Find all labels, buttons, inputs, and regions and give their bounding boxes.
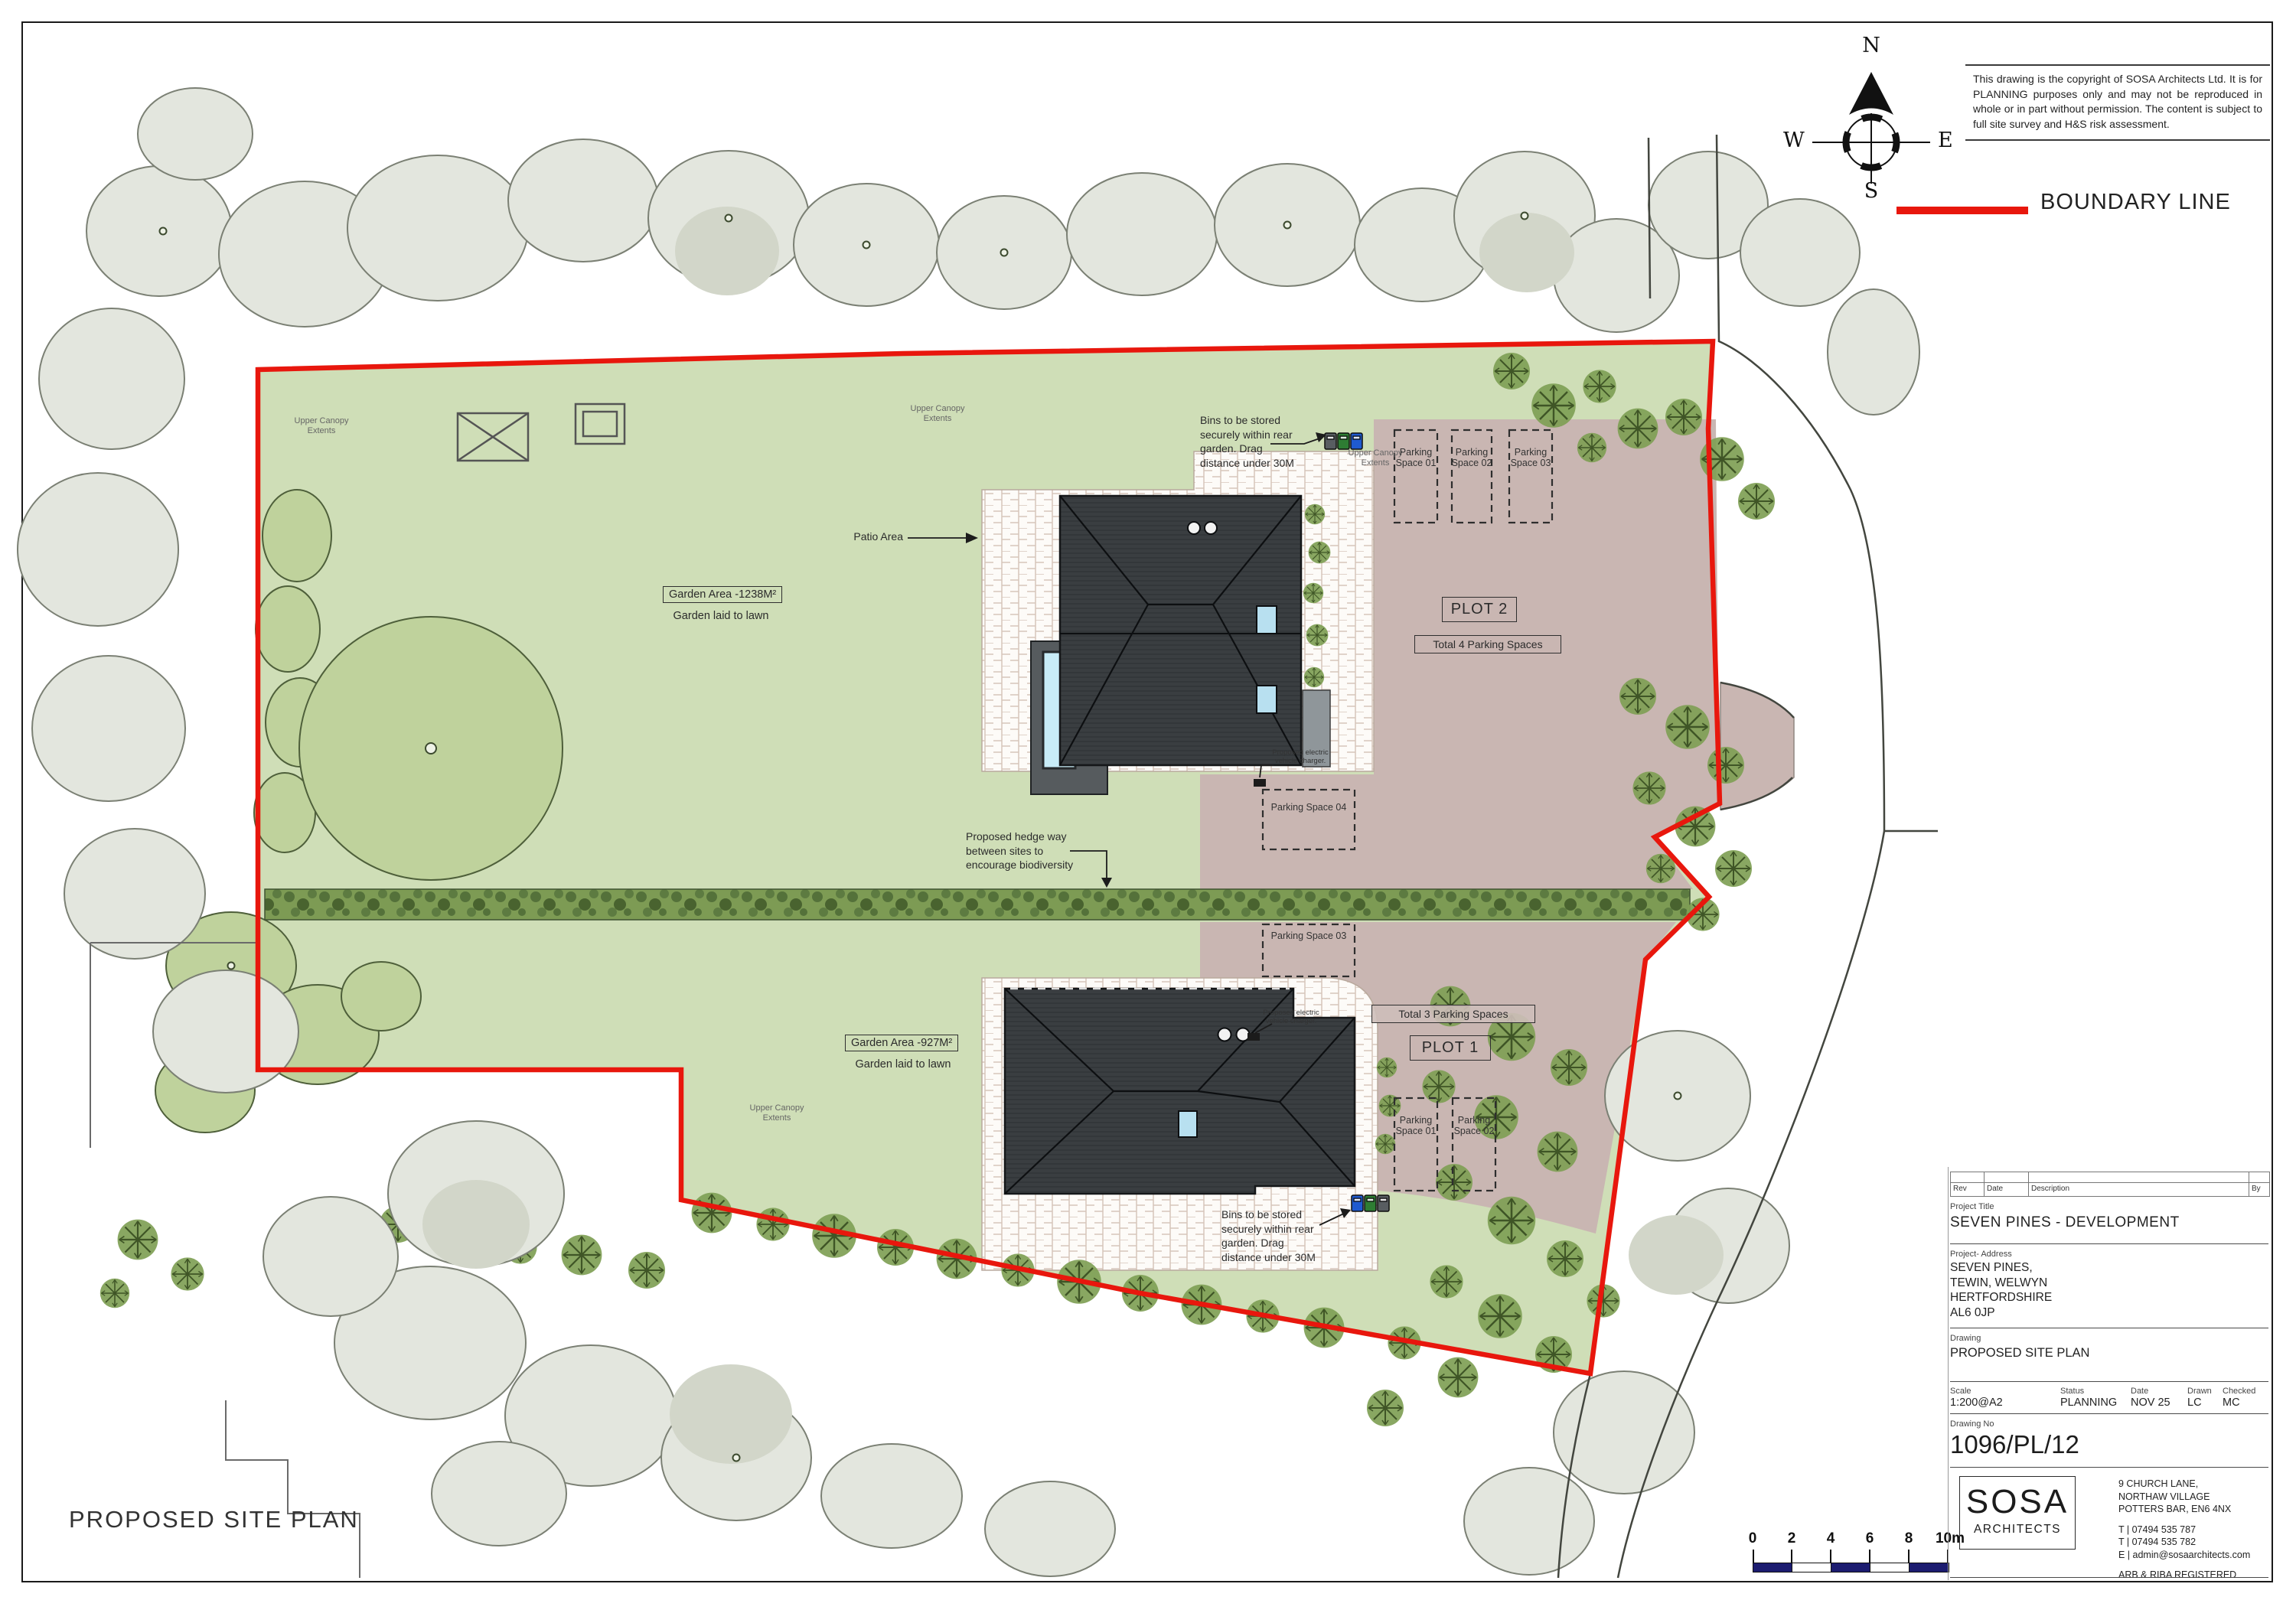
drawing-label: Drawing: [1950, 1334, 1981, 1343]
scale-value: 1:200@A2: [1950, 1396, 2003, 1409]
plot2-label: PLOT 2: [1442, 597, 1517, 622]
compass-s-label: S: [1864, 179, 1879, 203]
address-line: TEWIN, WELWYN: [1950, 1276, 2052, 1291]
plot1-rooflight: [1179, 1111, 1197, 1137]
drawn-value: LC: [2187, 1396, 2202, 1409]
drawing-no: 1096/PL/12: [1950, 1430, 2079, 1459]
parking-space-label: Parking Space 01: [1394, 1115, 1437, 1136]
firm-type: ARCHITECTS: [1960, 1523, 2075, 1537]
plot2-entrance: [1720, 683, 1794, 810]
checked-label: Checked: [2223, 1387, 2255, 1396]
revision-table: Rev Date Description By: [1950, 1172, 2270, 1197]
address-line: SEVEN PINES,: [1950, 1260, 2052, 1276]
checked-value: MC: [2223, 1396, 2240, 1409]
firm-address-line: 9 CHURCH LANE,: [2118, 1478, 2250, 1491]
drawing-no-label: Drawing No: [1950, 1419, 1994, 1429]
scale-tick-label: 0: [1749, 1530, 1757, 1547]
north-arrow-icon: [1849, 72, 1893, 115]
patio-area-label: Patio Area: [808, 530, 903, 544]
ev-note-plot1: Proposed electric vehicle charger.: [1261, 1009, 1321, 1025]
parking-space-label: Parking Space 03: [1263, 930, 1355, 941]
bins-note-plot2: Bins to be stored securely within rear g…: [1200, 413, 1303, 470]
canopy-extents-label: Upper Canopy Extents: [289, 416, 354, 436]
canopy-extents-label: Upper Canopy Extents: [905, 404, 970, 424]
plot2-rooflight: [1257, 606, 1277, 634]
sosa-logo: SOSA ARCHITECTS: [1959, 1476, 2076, 1550]
date-col-header: Date: [1985, 1183, 2029, 1196]
address-line: AL6 0JP: [1950, 1305, 2052, 1321]
plot1-label: PLOT 1: [1410, 1035, 1491, 1061]
sheet-title: PROPOSED SITE PLAN: [69, 1506, 359, 1533]
description-col-header: Description: [2029, 1183, 2249, 1196]
compass-n-label: N: [1862, 34, 1880, 57]
boundary-line-legend-label: BOUNDARY LINE: [2040, 190, 2231, 215]
firm-address-line: POTTERS BAR, EN6 4NX: [2118, 1503, 2250, 1516]
drawing-sheet: Patio Area Garden Area -1238M² Garden la…: [0, 0, 2296, 1623]
date-label: Date: [2131, 1387, 2148, 1396]
garden-lawn-plot1-label: Garden laid to lawn: [842, 1058, 964, 1071]
scale-tick-label: 4: [1827, 1530, 1835, 1547]
firm-phone: T | 07494 535 787: [2118, 1524, 2250, 1537]
parking-space-label: Parking Space 03: [1509, 447, 1552, 468]
garden-area-plot1-label: Garden Area -927M²: [845, 1035, 958, 1051]
firm-contact: 9 CHURCH LANE, NORTHAW VILLAGE POTTERS B…: [2118, 1478, 2250, 1582]
parking-space-label: Parking Space 02: [1453, 1115, 1495, 1136]
by-col-header: By: [2249, 1183, 2269, 1196]
bin-store-plot1: [1352, 1195, 1389, 1211]
scale-tick-label: 8: [1905, 1530, 1913, 1547]
status-label: Status: [2060, 1387, 2084, 1396]
plot2-total-parking: Total 4 Parking Spaces: [1414, 635, 1561, 653]
firm-registered: ARB & RIBA REGISTERED: [2118, 1569, 2250, 1582]
hedge-row: [265, 889, 1690, 920]
address-line: HERTFORDSHIRE: [1950, 1290, 2052, 1305]
date-value: NOV 25: [2131, 1396, 2170, 1409]
copyright-note: This drawing is the copyright of SOSA Ar…: [1965, 64, 2270, 141]
scale-tick-label: 2: [1788, 1530, 1796, 1547]
plot2-rooflight: [1257, 686, 1277, 713]
scale-bar: 0 2 4 6 8 10m: [1753, 1530, 1967, 1576]
status-value: PLANNING: [2060, 1396, 2117, 1409]
project-address-label: Project- Address: [1950, 1250, 2012, 1259]
drawing-name: PROPOSED SITE PLAN: [1950, 1346, 2089, 1361]
firm-email: E | admin@sosaarchitects.com: [2118, 1549, 2250, 1562]
compass-e-label: E: [1938, 129, 1953, 152]
rev-col-header: Rev: [1951, 1183, 1985, 1196]
bin-store-plot2: [1325, 433, 1362, 449]
hedge-note: Proposed hedge way between sites to enco…: [966, 829, 1082, 872]
drawn-label: Drawn: [2187, 1387, 2212, 1396]
compass-w-label: W: [1783, 129, 1805, 152]
parking-space-label: Parking Space 01: [1394, 447, 1437, 468]
garden-lawn-plot2-label: Garden laid to lawn: [660, 610, 782, 622]
boundary-line-swatch: [1896, 207, 2028, 214]
canopy-extents-label: Upper Canopy Extents: [745, 1103, 809, 1123]
ev-charger-plot1: [1247, 1033, 1260, 1041]
project-title: SEVEN PINES - DEVELOPMENT: [1950, 1214, 2180, 1231]
firm-name: SOSA: [1960, 1483, 2075, 1521]
firm-address-line: NORTHAW VILLAGE: [2118, 1491, 2250, 1504]
garden-area-plot2-label: Garden Area -1238M²: [663, 586, 782, 603]
bins-note-plot1: Bins to be stored securely within rear g…: [1221, 1207, 1324, 1264]
parking-space-label: Parking Space 02: [1450, 447, 1493, 468]
firm-phone: T | 07494 535 782: [2118, 1536, 2250, 1549]
ev-charger-plot2: [1254, 779, 1266, 787]
ev-note-plot2: Proposed electric vehicle charger.: [1270, 748, 1330, 765]
plot1-total-parking: Total 3 Parking Spaces: [1371, 1005, 1535, 1023]
title-block: Rev Date Description By Project Title SE…: [1948, 1167, 2272, 1580]
compass-rose: [1812, 72, 1930, 184]
parking-space-label: Parking Space 04: [1263, 802, 1355, 813]
scale-tick-label: 6: [1866, 1530, 1874, 1547]
project-title-label: Project Title: [1950, 1202, 1994, 1211]
scale-label: Scale: [1950, 1387, 1971, 1396]
